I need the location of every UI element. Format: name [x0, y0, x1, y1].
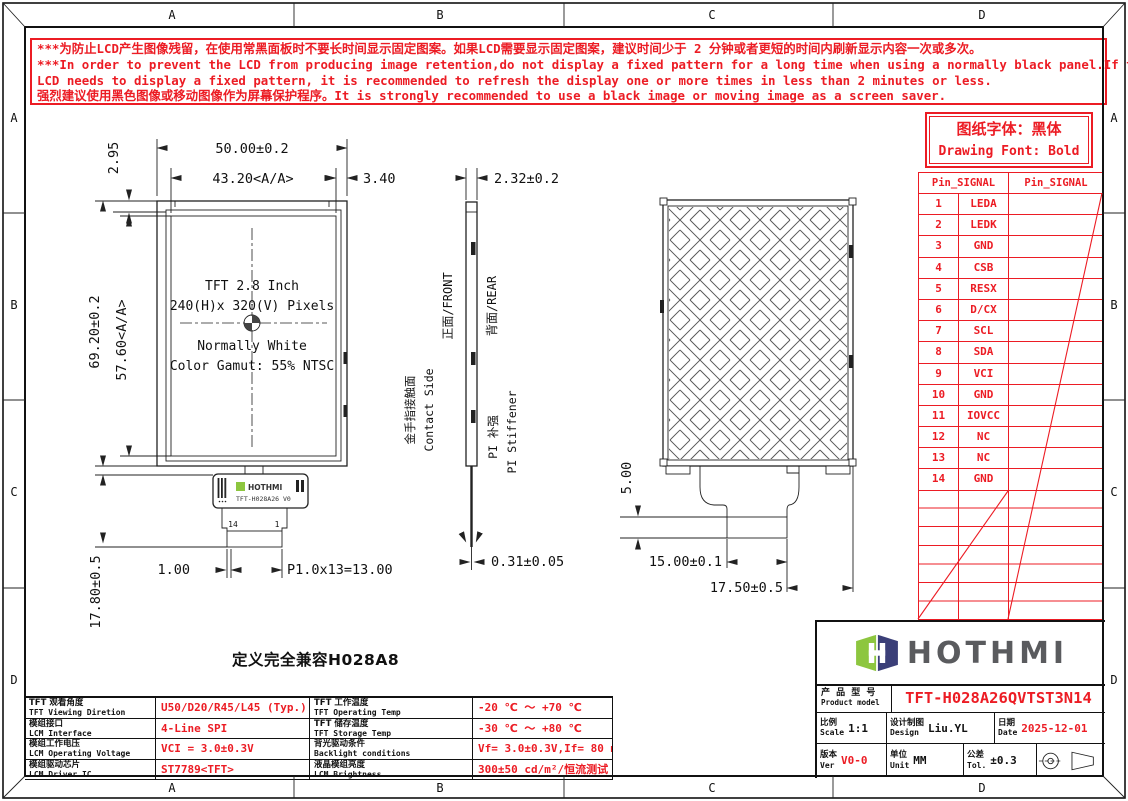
spec-row: TFT 观看角度TFT Viewing DiretionU50/D20/R45/… [25, 698, 612, 719]
warning-line: LCD needs to display a fixed pattern, it… [37, 73, 1105, 89]
zone-top-c: C [708, 8, 715, 22]
zone-right-b: B [1110, 298, 1117, 312]
pin-row: 5RESX [919, 279, 1103, 300]
fpc-logo-icon [236, 482, 245, 491]
warning-line: ***In order to prevent the LCD from prod… [37, 57, 1105, 73]
zone-left-d: D [10, 673, 17, 687]
dim-aa-width: 43.20<A/A> [212, 171, 293, 187]
zone-right-d: D [1110, 673, 1117, 687]
date-value: 2025-12-01 [1021, 722, 1087, 735]
zone-top-d: D [978, 8, 985, 22]
screen-mode-text: Normally White [197, 339, 307, 354]
compatibility-note: 定义完全兼容H028A8 [232, 648, 399, 670]
zone-bottom-b: B [436, 781, 443, 795]
pin-row: 12NC [919, 427, 1103, 448]
projection-symbol [1037, 744, 1105, 777]
dim-aa-height: 57.60<A/A> [114, 299, 130, 380]
pin-row: 10GND [919, 385, 1103, 406]
dim-pitch: P1.0x13=13.00 [287, 562, 393, 578]
edge-tab [344, 405, 348, 417]
stiffener-label-cn: PI 补强 [486, 415, 500, 459]
fpc-rear [700, 466, 799, 538]
pin-table-body: 1LEDA2LEDK3GND4CSB5RESX6D/CX7SCL8SDA9VCI… [919, 194, 1103, 491]
front-view: TFT 2.8 Inch 240(H)x 320(V) Pixels Norma… [87, 139, 396, 629]
pin-row: 1LEDA [919, 194, 1103, 215]
zone-bottom-c: C [708, 781, 715, 795]
designer-value: Liu.YL [928, 722, 968, 735]
zone-left-a: A [10, 111, 17, 125]
dim-fpc-thickness: 0.31±0.05 [491, 554, 564, 570]
dim-stiffener-width: 15.00±0.1 [649, 554, 722, 570]
rear-panel-weave [669, 207, 847, 459]
screen-size-text: TFT 2.8 Inch [205, 279, 299, 294]
drawing-font-note: 图纸字体：黑体 Drawing Font: Bold [925, 112, 1093, 168]
dim-thickness: 2.32±0.2 [494, 171, 559, 187]
side-view: 2.32±0.2 0.31±0.05 正面/FRONT 背面/REAR 金手指接… [403, 168, 564, 570]
product-label-en: Product model [821, 698, 891, 707]
center-mark [244, 315, 260, 331]
version-cell: 版本 Ver V0-0 [817, 744, 887, 777]
dim-side-margin: 3.40 [363, 171, 396, 187]
product-label-cn: 产 品 型 号 [821, 688, 891, 698]
version-value: V0-0 [841, 754, 868, 767]
contact-side-label-cn: 金手指接触面 [403, 376, 417, 445]
scale-cell: 比例 Scale 1:1 [817, 713, 887, 743]
edge-tab [344, 352, 348, 364]
dim-fpc-length: 17.80±0.5 [88, 555, 104, 628]
design-cell: 设计制图 Design Liu.YL [887, 713, 995, 743]
product-model-row: 产 品 型 号 Product model TFT-H028A26QVTST3N… [817, 686, 1105, 713]
third-angle-projection-icon [1037, 748, 1105, 774]
zone-right-a: A [1110, 111, 1117, 125]
font-note-cn: 图纸字体：黑体 [930, 117, 1088, 142]
contact-side-label-en: Contact Side [422, 368, 436, 451]
dim-top-margin: 2.95 [106, 142, 122, 175]
screen-gamut-text: Color Gamut: 55% NTSC [170, 359, 334, 374]
pin-row: 6D/CX [919, 300, 1103, 321]
pin-table-header: Pin_SIGNAL Pin_SIGNAL [919, 173, 1103, 194]
dim-width: 50.00±0.2 [215, 141, 288, 157]
font-note-en: Drawing Font: Bold [930, 142, 1088, 162]
hothmi-wordmark: HOTHMI [907, 636, 1068, 671]
fpc-pin14-label: 14 [228, 520, 238, 529]
pin-row: 13NC [919, 448, 1103, 469]
pin-row: 3GND [919, 236, 1103, 257]
unit-value: MM [913, 754, 926, 767]
rear-side-label: 背面/REAR [485, 275, 499, 336]
pin-row: 9VCI [919, 364, 1103, 385]
pin-row: 4CSB [919, 258, 1103, 279]
pin-row: 8SDA [919, 342, 1103, 363]
zone-left-b: B [10, 298, 17, 312]
zone-bottom-a: A [168, 781, 175, 795]
title-block: HOTHMI 产 品 型 号 Product model TFT-H028A26… [815, 620, 1105, 778]
fpc-brand-text: HOTHMI [248, 483, 283, 492]
product-model-value: TFT-H028A26QVTST3N14 [892, 686, 1105, 712]
retention-warning-note: ***为防止LCD产生图像残留，在使用常黑面板时不要长时间显示固定图案。如果LC… [30, 38, 1107, 105]
fpc-front: HOTHMI TFT-H028A26 V0 14 1 [213, 466, 308, 547]
dim-stiffener-height: 5.00 [619, 462, 635, 495]
scale-value: 1:1 [848, 722, 868, 735]
zone-top-a: A [168, 8, 175, 22]
zone-left-c: C [10, 485, 17, 499]
pin-header-right: Pin_SIGNAL [1009, 173, 1103, 193]
zone-bottom-d: D [978, 781, 985, 795]
drawing-sheet: A B C D A B C D A B C D A B C D ***为防止LC… [0, 0, 1128, 801]
pin-row: 14GND [919, 469, 1103, 490]
spec-row: 模组驱动芯片LCM Driver ICST7789<TFT>液晶模组亮度LCM … [25, 760, 612, 781]
spec-table: TFT 观看角度TFT Viewing DiretionU50/D20/R45/… [25, 696, 613, 780]
tolerance-value: ±0.3 [990, 754, 1017, 767]
fpc-model-text: TFT-H028A26 V0 [236, 495, 291, 503]
spec-row: 模组工作电压LCM Operating VoltageVCI = 3.0±0.3… [25, 739, 612, 760]
zone-right-c: C [1110, 485, 1117, 499]
pin-row: 11IOVCC [919, 406, 1103, 427]
pin-row: 2LEDK [919, 215, 1103, 236]
dim-pin-offset: 1.00 [157, 562, 190, 578]
dim-height: 69.20±0.2 [87, 295, 103, 368]
rear-view: 5.00 15.00±0.1 17.50±0.5 [619, 198, 856, 596]
tolerance-cell: 公差 Tol. ±0.3 [964, 744, 1037, 777]
date-cell: 日期 Date 2025-12-01 [995, 713, 1105, 743]
pi-stiffener-hatch [727, 517, 787, 538]
fpc-pin1-label: 1 [275, 520, 280, 529]
pin-row: 7SCL [919, 321, 1103, 342]
pin-table: Pin_SIGNAL Pin_SIGNAL 1LEDA2LEDK3GND4CSB… [918, 172, 1103, 491]
hothmi-logo-icon [854, 633, 900, 673]
unit-cell: 单位 Unit MM [887, 744, 964, 777]
warning-line: ***为防止LCD产生图像残留，在使用常黑面板时不要长时间显示固定图案。如果LC… [37, 41, 1105, 57]
company-logo: HOTHMI [817, 622, 1105, 686]
dim-fpc-offset: 17.50±0.5 [710, 580, 783, 596]
warning-line: 强烈建议使用黑色图像或移动图像作为屏幕保护程序。It is strongly r… [37, 88, 1105, 104]
zone-top-b: B [436, 8, 443, 22]
pin-header-left: Pin_SIGNAL [919, 173, 1009, 193]
front-side-label: 正面/FRONT [441, 272, 455, 339]
screen-resolution-text: 240(H)x 320(V) Pixels [170, 299, 334, 314]
spec-row: 模组接口LCM Interface4-Line SPITFT 储存温度TFT S… [25, 719, 612, 740]
stiffener-label-en: PI Stiffener [505, 390, 519, 473]
pin-table-empty-rows [918, 490, 1103, 620]
